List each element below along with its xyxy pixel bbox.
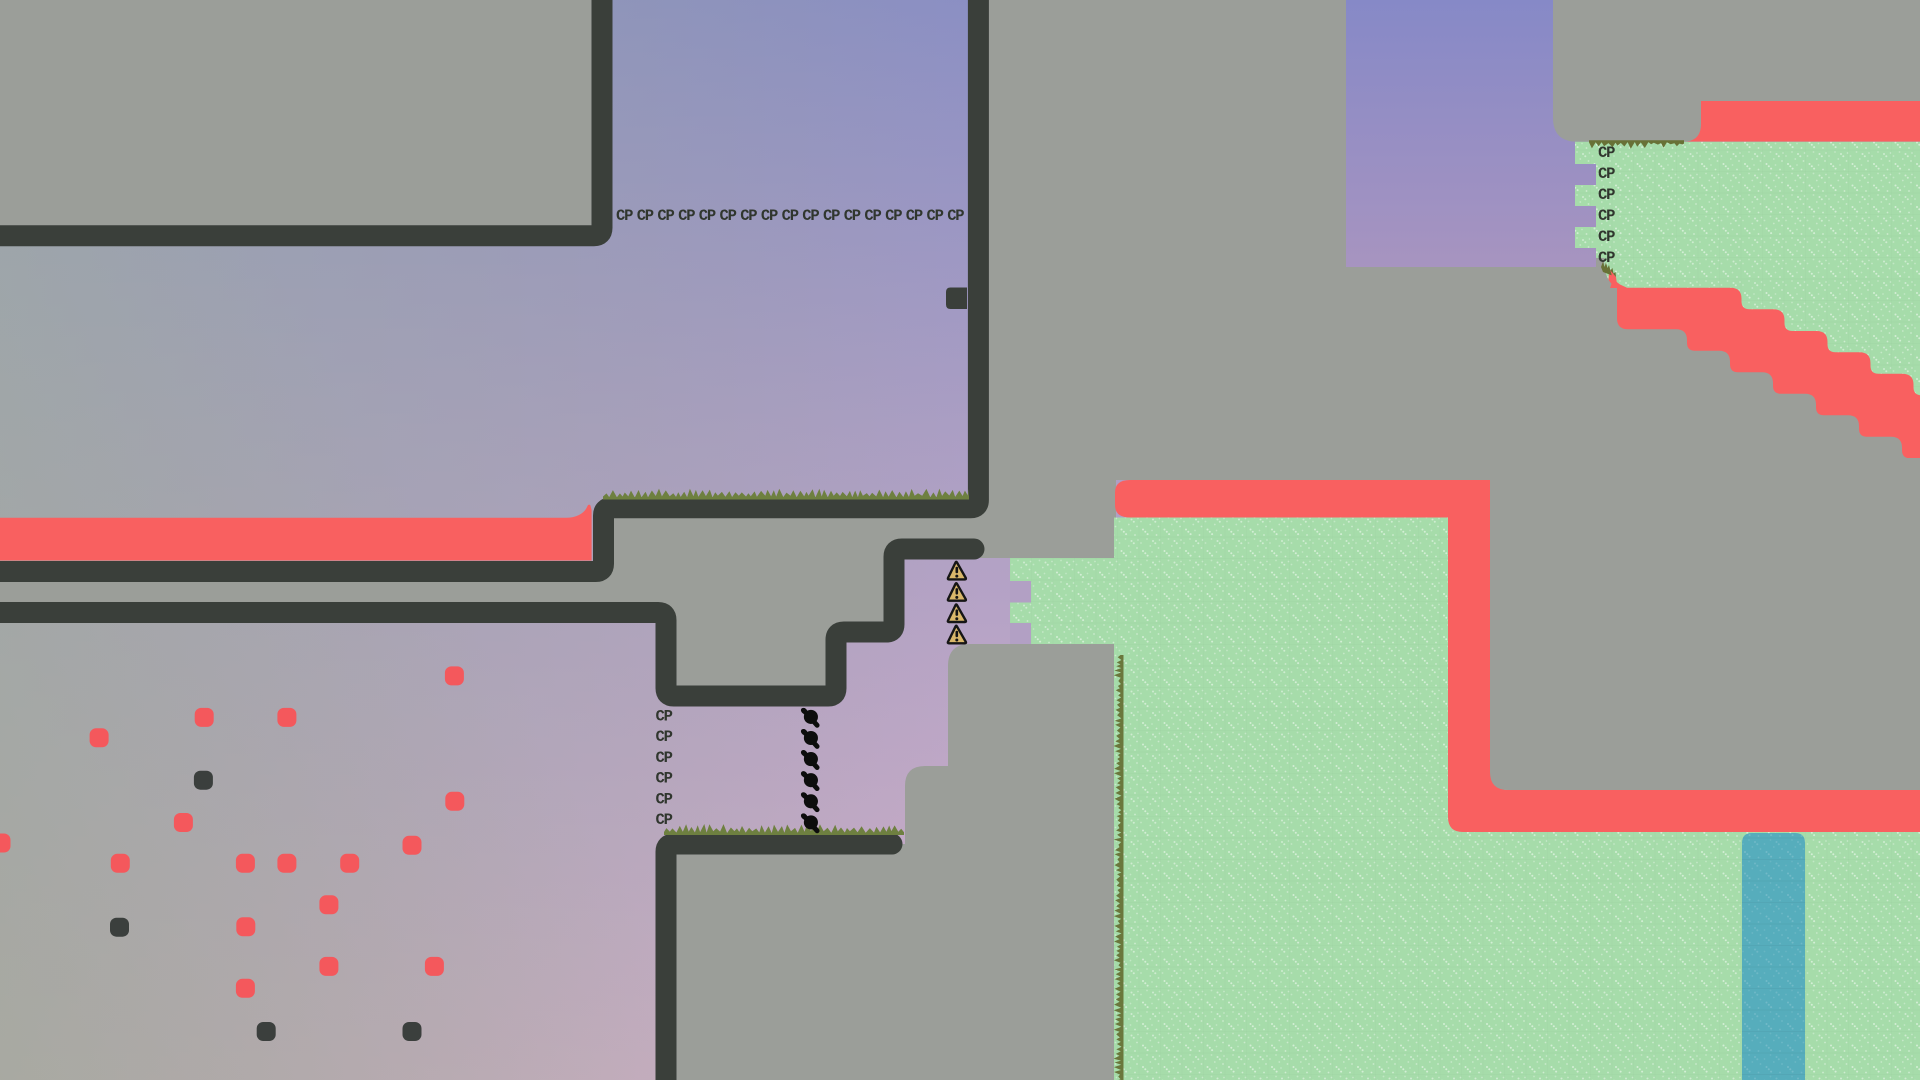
svg-text:CP: CP	[1598, 249, 1615, 267]
svg-text:CP: CP	[1598, 165, 1615, 183]
svg-text:CP: CP	[678, 207, 695, 225]
svg-text:CP: CP	[656, 749, 673, 767]
svg-text:CP: CP	[823, 207, 840, 225]
svg-text:CP: CP	[1598, 207, 1615, 225]
svg-text:CP: CP	[782, 207, 799, 225]
svg-text:CP: CP	[720, 207, 737, 225]
svg-text:CP: CP	[656, 708, 673, 726]
svg-text:CP: CP	[616, 207, 633, 225]
svg-text:CP: CP	[761, 207, 778, 225]
svg-text:CP: CP	[1598, 186, 1615, 204]
svg-text:CP: CP	[844, 207, 861, 225]
svg-text:CP: CP	[802, 207, 819, 225]
svg-text:CP: CP	[656, 811, 673, 829]
svg-text:CP: CP	[947, 207, 964, 225]
svg-text:CP: CP	[1598, 228, 1615, 246]
svg-text:CP: CP	[656, 770, 673, 788]
svg-text:CP: CP	[927, 207, 944, 225]
svg-text:CP: CP	[864, 207, 881, 225]
svg-text:CP: CP	[699, 207, 716, 225]
svg-text:CP: CP	[637, 207, 654, 225]
svg-text:CP: CP	[656, 728, 673, 746]
svg-text:CP: CP	[906, 207, 923, 225]
svg-text:CP: CP	[1598, 144, 1615, 162]
svg-text:CP: CP	[657, 207, 674, 225]
svg-text:CP: CP	[656, 790, 673, 808]
svg-text:CP: CP	[885, 207, 902, 225]
svg-text:CP: CP	[740, 207, 757, 225]
